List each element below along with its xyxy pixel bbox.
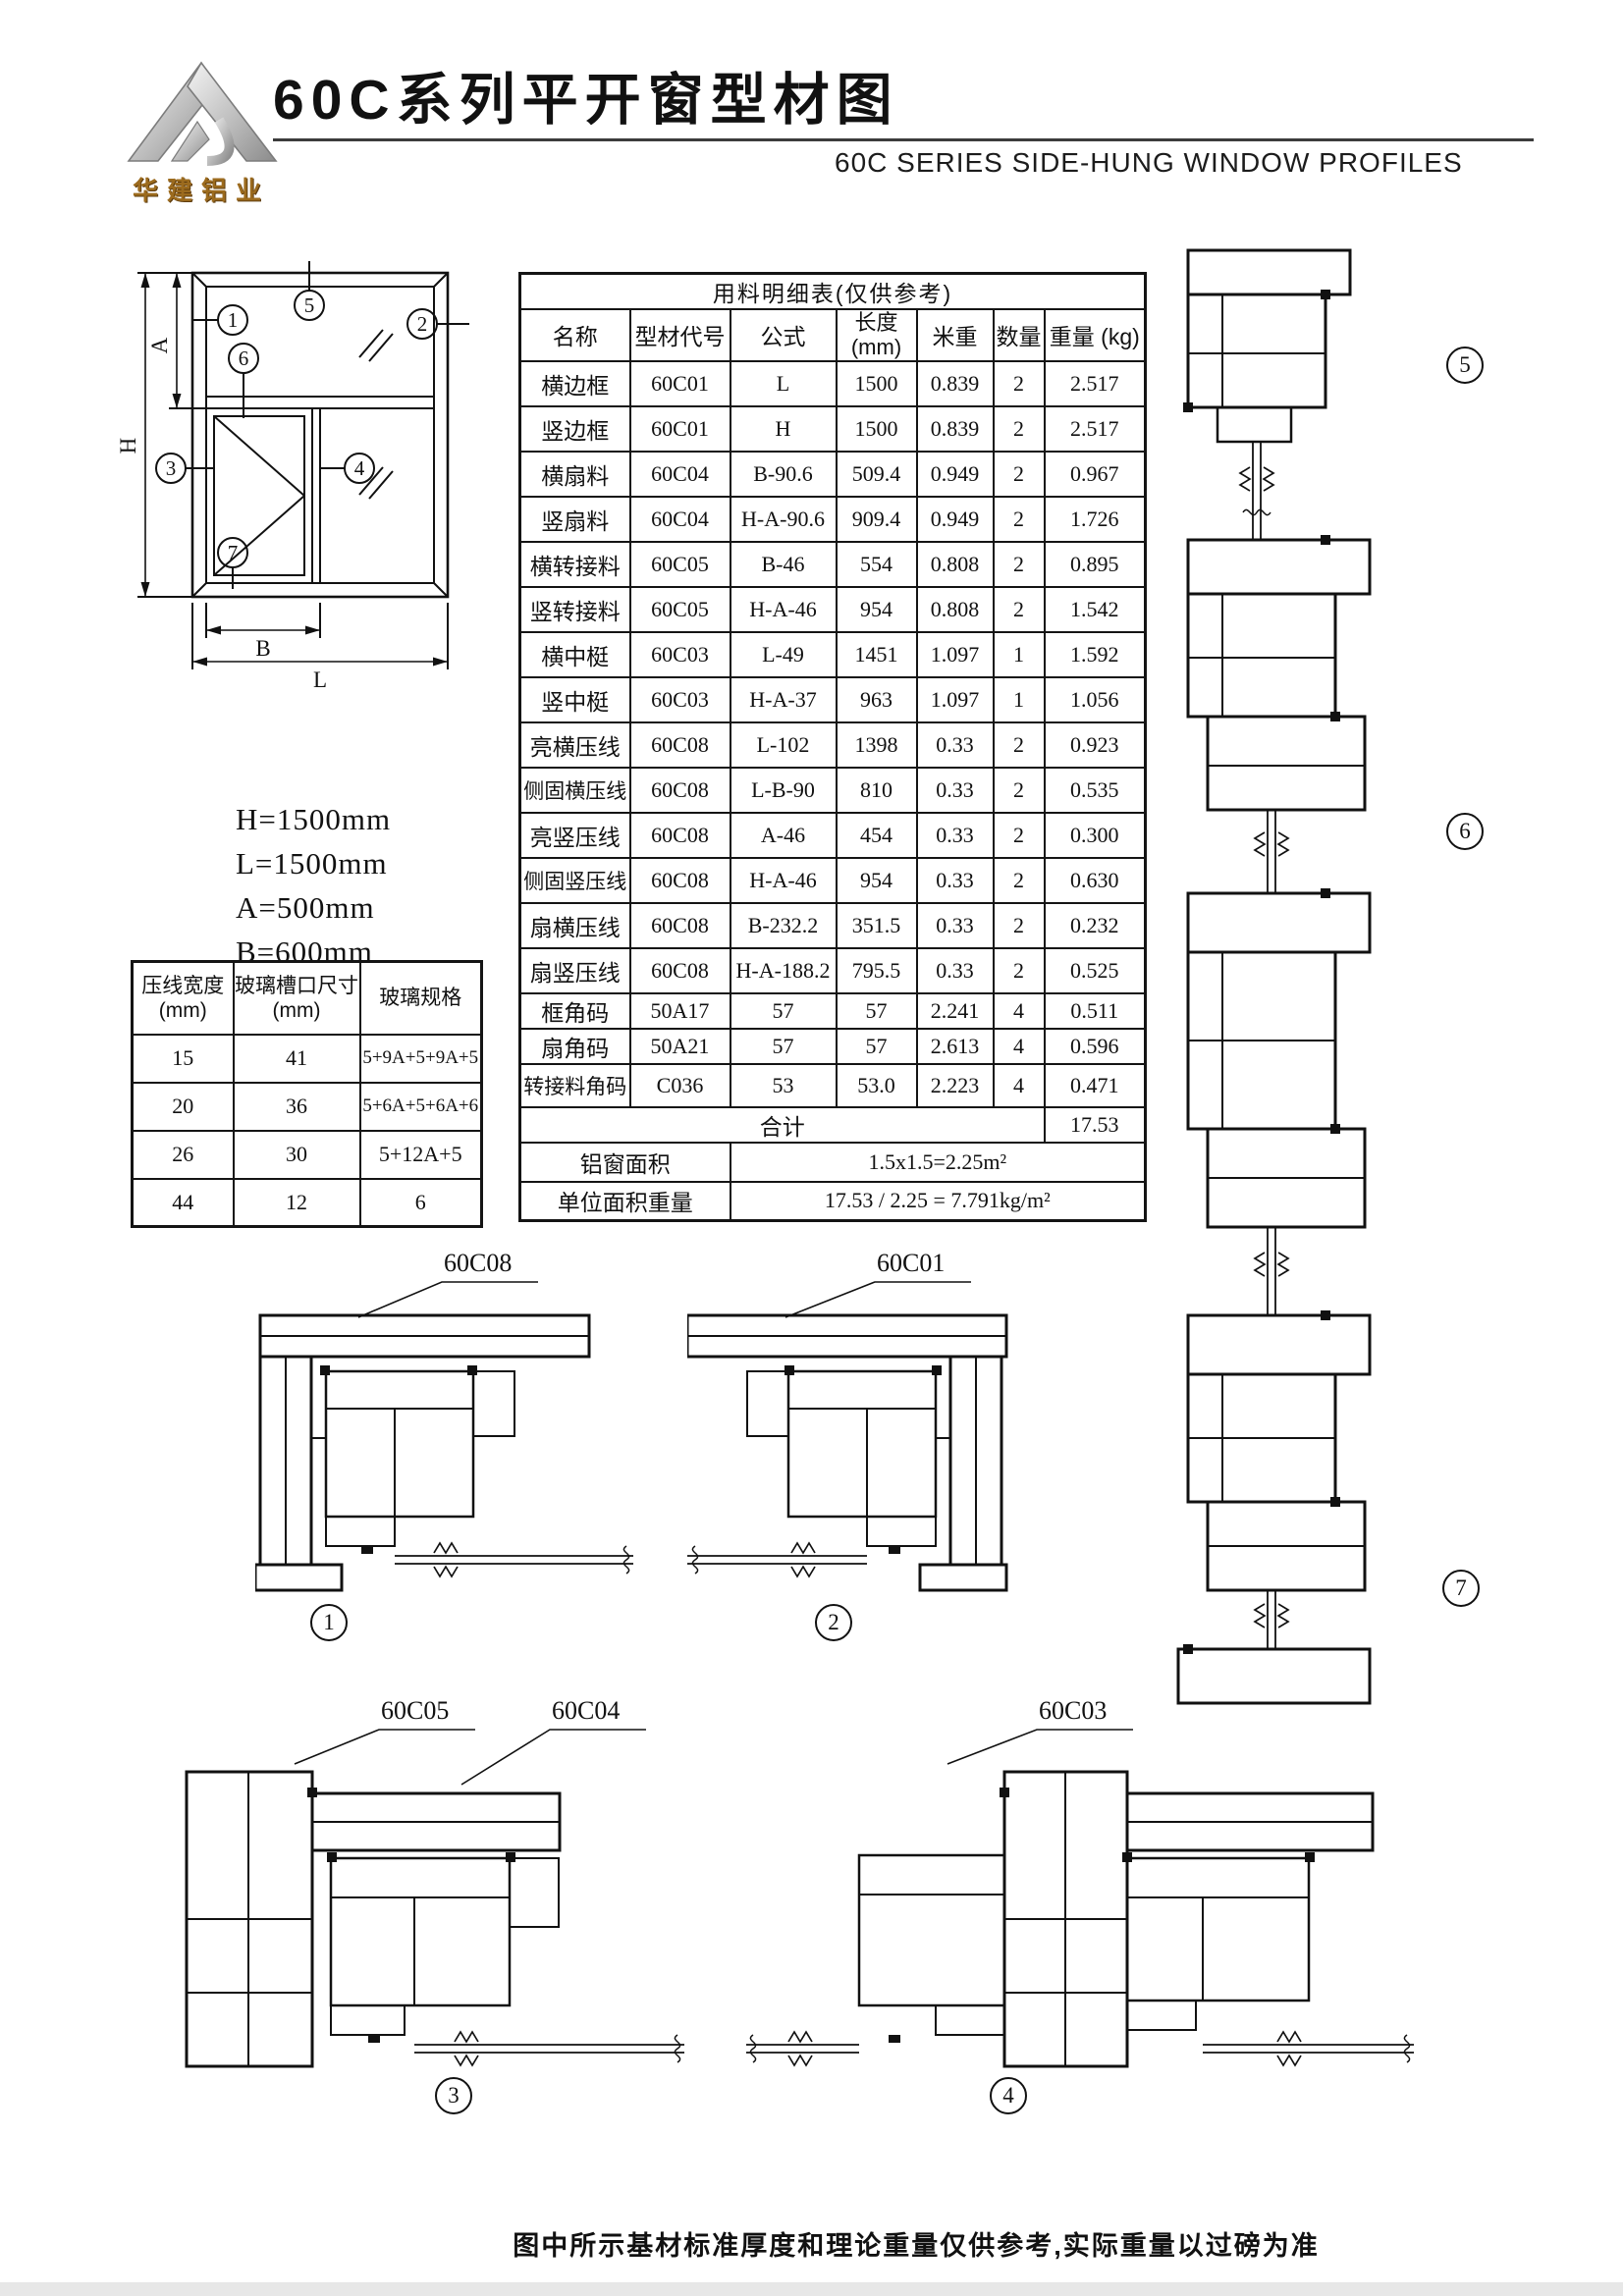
svg-text:5: 5 bbox=[304, 294, 315, 317]
svg-text:4: 4 bbox=[354, 456, 365, 480]
materials-unit-weight-row: 单位面积重量 17.53 / 2.25 = 7.791kg/m² bbox=[520, 1182, 1146, 1221]
table-cell: 60C08 bbox=[630, 722, 730, 768]
dim-label-h: H bbox=[116, 438, 140, 454]
profile-label-60C08: 60C08 bbox=[444, 1249, 512, 1278]
table-cell: 2 bbox=[994, 542, 1045, 587]
table-cell: 2 bbox=[994, 768, 1045, 813]
table-cell: 810 bbox=[837, 768, 917, 813]
table-cell: 1451 bbox=[837, 632, 917, 677]
table-cell: 351.5 bbox=[837, 903, 917, 948]
table-cell: 转接料角码 bbox=[520, 1064, 630, 1107]
dimension-note-line: A=500mm bbox=[236, 885, 391, 930]
diagram-callout-5: 5 bbox=[295, 291, 324, 320]
materials-area-row: 铝窗面积 1.5x1.5=2.25m² bbox=[520, 1143, 1146, 1182]
glass-row: 44126 bbox=[133, 1179, 482, 1227]
table-cell: 954 bbox=[837, 587, 917, 632]
total-value: 17.53 bbox=[1045, 1107, 1146, 1143]
section-2-drawing bbox=[687, 1310, 1011, 1595]
table-cell: 2 bbox=[994, 858, 1045, 903]
page-bottom-strip bbox=[0, 2282, 1623, 2296]
table-cell: 954 bbox=[837, 858, 917, 903]
table-cell: 4 bbox=[994, 993, 1045, 1029]
section-3-drawing bbox=[182, 1762, 692, 2086]
table-cell: 53.0 bbox=[837, 1064, 917, 1107]
table-cell: H-A-188.2 bbox=[730, 948, 837, 993]
section-callout-6: 6 bbox=[1446, 813, 1484, 850]
table-cell: 1.542 bbox=[1045, 587, 1146, 632]
glass-row: 26305+12A+5 bbox=[133, 1131, 482, 1179]
table-cell: H-A-46 bbox=[730, 858, 837, 903]
table-cell: 554 bbox=[837, 542, 917, 587]
table-cell: 2 bbox=[994, 948, 1045, 993]
diagram-callout-1: 1 bbox=[218, 305, 247, 335]
materials-row: 侧固横压线60C08L-B-908100.3320.535 bbox=[520, 768, 1146, 813]
table-cell: L bbox=[730, 361, 837, 406]
header-divider bbox=[273, 138, 1534, 141]
table-cell: 1.592 bbox=[1045, 632, 1146, 677]
materials-row: 横边框60C01L15000.83922.517 bbox=[520, 361, 1146, 406]
svg-text:3: 3 bbox=[166, 456, 177, 480]
table-cell: 909.4 bbox=[837, 497, 917, 542]
table-cell: 30 bbox=[234, 1131, 360, 1179]
table-cell: 1.726 bbox=[1045, 497, 1146, 542]
table-cell: 1.056 bbox=[1045, 677, 1146, 722]
table-cell: 1.097 bbox=[917, 677, 994, 722]
col-profile-code: 型材代号 bbox=[630, 309, 730, 361]
table-cell: 5+9A+5+9A+5 bbox=[360, 1035, 482, 1083]
profile-label-60C01: 60C01 bbox=[877, 1249, 945, 1278]
table-cell: 0.511 bbox=[1045, 993, 1146, 1029]
table-cell: 60C03 bbox=[630, 677, 730, 722]
table-cell: 1398 bbox=[837, 722, 917, 768]
diagram-callout-6: 6 bbox=[229, 344, 258, 373]
table-cell: 框角码 bbox=[520, 993, 630, 1029]
table-cell: 1 bbox=[994, 677, 1045, 722]
materials-table-header-row: 名称 型材代号 公式 长度 (mm) 米重 数量 重量 (kg) bbox=[520, 309, 1146, 361]
table-cell: 0.33 bbox=[917, 813, 994, 858]
table-cell: L-B-90 bbox=[730, 768, 837, 813]
table-cell: 侧固横压线 bbox=[520, 768, 630, 813]
diagram-callout-2: 2 bbox=[407, 309, 437, 339]
materials-row: 横扇料60C04B-90.6509.40.94920.967 bbox=[520, 452, 1146, 497]
table-cell: 亮竖压线 bbox=[520, 813, 630, 858]
materials-row: 框角码50A1757572.24140.511 bbox=[520, 993, 1146, 1029]
table-cell: B-232.2 bbox=[730, 903, 837, 948]
table-cell: 4 bbox=[994, 1029, 1045, 1064]
table-cell: 0.895 bbox=[1045, 542, 1146, 587]
table-cell: 2 bbox=[994, 722, 1045, 768]
table-cell: 36 bbox=[234, 1083, 360, 1131]
section-callout-2: 2 bbox=[815, 1604, 852, 1641]
table-cell: 0.808 bbox=[917, 587, 994, 632]
table-cell: 0.949 bbox=[917, 452, 994, 497]
table-cell: 0.232 bbox=[1045, 903, 1146, 948]
window-area-label: 铝窗面积 bbox=[520, 1143, 730, 1182]
table-cell: 2 bbox=[994, 406, 1045, 452]
table-cell: 2.517 bbox=[1045, 406, 1146, 452]
col-glazing-slot: 玻璃槽口尺寸 (mm) bbox=[234, 962, 360, 1035]
table-cell: 扇竖压线 bbox=[520, 948, 630, 993]
table-cell: 0.300 bbox=[1045, 813, 1146, 858]
table-cell: 横边框 bbox=[520, 361, 630, 406]
table-cell: 0.525 bbox=[1045, 948, 1146, 993]
company-name: 华建铝业 bbox=[93, 171, 309, 207]
col-formula: 公式 bbox=[730, 309, 837, 361]
table-cell: 4 bbox=[994, 1064, 1045, 1107]
table-cell: 竖边框 bbox=[520, 406, 630, 452]
diagram-callout-7: 7 bbox=[218, 538, 247, 567]
table-cell: 0.33 bbox=[917, 768, 994, 813]
table-cell: 竖转接料 bbox=[520, 587, 630, 632]
table-cell: 侧固竖压线 bbox=[520, 858, 630, 903]
materials-row: 扇角码50A2157572.61340.596 bbox=[520, 1029, 1146, 1064]
dim-label-l: L bbox=[313, 667, 327, 692]
table-cell: 2 bbox=[994, 587, 1045, 632]
glass-row: 15415+9A+5+9A+5 bbox=[133, 1035, 482, 1083]
table-cell: 横扇料 bbox=[520, 452, 630, 497]
table-cell: 60C08 bbox=[630, 813, 730, 858]
dimension-notes: H=1500mmL=1500mmA=500mmB=600mm bbox=[236, 797, 391, 974]
materials-row: 亮横压线60C08L-10213980.3320.923 bbox=[520, 722, 1146, 768]
svg-text:7: 7 bbox=[228, 541, 239, 564]
materials-row: 侧固竖压线60C08H-A-469540.3320.630 bbox=[520, 858, 1146, 903]
table-cell: B-46 bbox=[730, 542, 837, 587]
table-cell: 53 bbox=[730, 1064, 837, 1107]
table-cell: 1500 bbox=[837, 361, 917, 406]
total-label: 合计 bbox=[520, 1107, 1045, 1143]
materials-row: 扇竖压线60C08H-A-188.2795.50.3320.525 bbox=[520, 948, 1146, 993]
table-cell: 2 bbox=[994, 903, 1045, 948]
table-cell: 57 bbox=[837, 993, 917, 1029]
materials-row: 转接料角码C0365353.02.22340.471 bbox=[520, 1064, 1146, 1107]
table-cell: 60C03 bbox=[630, 632, 730, 677]
dim-label-b: B bbox=[255, 636, 270, 661]
table-cell: 12 bbox=[234, 1179, 360, 1227]
table-cell: C036 bbox=[630, 1064, 730, 1107]
table-cell: 44 bbox=[133, 1179, 234, 1227]
table-cell: 1.097 bbox=[917, 632, 994, 677]
materials-table-title: 用料明细表(仅供参考) bbox=[520, 274, 1146, 310]
table-cell: 0.33 bbox=[917, 903, 994, 948]
table-cell: 60C01 bbox=[630, 406, 730, 452]
table-cell: 0.839 bbox=[917, 361, 994, 406]
company-logo-icon bbox=[103, 57, 299, 169]
table-cell: 60C04 bbox=[630, 497, 730, 542]
footer-disclaimer: 图中所示基材标准厚度和理论重量仅供参考,实际重量以过磅为准 bbox=[474, 2224, 1358, 2263]
page-title: 60C系列平开窗型材图 bbox=[273, 55, 899, 135]
window-elevation-diagram: H A B L 1 5 2 6 bbox=[116, 259, 481, 693]
table-cell: 2 bbox=[994, 497, 1045, 542]
table-cell: 横中梃 bbox=[520, 632, 630, 677]
materials-table: 用料明细表(仅供参考) 名称 型材代号 公式 长度 (mm) 米重 数量 重量 … bbox=[518, 272, 1147, 1222]
table-cell: 2 bbox=[994, 361, 1045, 406]
page-subtitle: 60C SERIES SIDE-HUNG WINDOW PROFILES bbox=[835, 147, 1420, 179]
section-callout-5: 5 bbox=[1446, 347, 1484, 384]
materials-row: 亮竖压线60C08A-464540.3320.300 bbox=[520, 813, 1146, 858]
glass-spec-table: 压线宽度 (mm) 玻璃槽口尺寸 (mm) 玻璃规格 15415+9A+5+9A… bbox=[131, 960, 483, 1228]
materials-row: 竖转接料60C05H-A-469540.80821.542 bbox=[520, 587, 1146, 632]
table-cell: 0.596 bbox=[1045, 1029, 1146, 1064]
table-cell: 60C01 bbox=[630, 361, 730, 406]
materials-row: 竖中梃60C03H-A-379631.09711.056 bbox=[520, 677, 1146, 722]
table-cell: 0.923 bbox=[1045, 722, 1146, 768]
table-cell: 竖扇料 bbox=[520, 497, 630, 542]
unit-weight-value: 17.53 / 2.25 = 7.791kg/m² bbox=[730, 1182, 1146, 1221]
section-callout-4: 4 bbox=[990, 2077, 1027, 2114]
table-cell: 0.630 bbox=[1045, 858, 1146, 903]
col-quantity: 数量 bbox=[994, 309, 1045, 361]
table-cell: 60C08 bbox=[630, 903, 730, 948]
diagram-callout-3: 3 bbox=[156, 454, 186, 483]
table-cell: 60C08 bbox=[630, 858, 730, 903]
table-cell: 2 bbox=[994, 452, 1045, 497]
table-cell: 963 bbox=[837, 677, 917, 722]
table-cell: A-46 bbox=[730, 813, 837, 858]
table-cell: 1 bbox=[994, 632, 1045, 677]
glass-hatch-transom bbox=[359, 330, 393, 361]
table-cell: 15 bbox=[133, 1035, 234, 1083]
table-cell: H-A-90.6 bbox=[730, 497, 837, 542]
table-cell: 2.613 bbox=[917, 1029, 994, 1064]
table-cell: 41 bbox=[234, 1035, 360, 1083]
col-weight-per-meter: 米重 bbox=[917, 309, 994, 361]
dim-label-a: A bbox=[147, 337, 172, 353]
table-cell: B-90.6 bbox=[730, 452, 837, 497]
materials-row: 横中梃60C03L-4914511.09711.592 bbox=[520, 632, 1146, 677]
col-weight: 重量 (kg) bbox=[1045, 309, 1146, 361]
table-cell: 0.967 bbox=[1045, 452, 1146, 497]
table-cell: 横转接料 bbox=[520, 542, 630, 587]
table-cell: 60C05 bbox=[630, 542, 730, 587]
table-cell: 26 bbox=[133, 1131, 234, 1179]
table-cell: 竖中梃 bbox=[520, 677, 630, 722]
table-cell: 60C05 bbox=[630, 587, 730, 632]
table-cell: 1500 bbox=[837, 406, 917, 452]
table-cell: 0.808 bbox=[917, 542, 994, 587]
table-cell: 0.535 bbox=[1045, 768, 1146, 813]
table-cell: 60C08 bbox=[630, 768, 730, 813]
table-cell: 0.839 bbox=[917, 406, 994, 452]
table-cell: 2 bbox=[994, 813, 1045, 858]
dimension-note-line: H=1500mm bbox=[236, 797, 391, 841]
table-cell: 50A17 bbox=[630, 993, 730, 1029]
table-cell: 60C04 bbox=[630, 452, 730, 497]
col-length: 长度 (mm) bbox=[837, 309, 917, 361]
table-cell: H-A-46 bbox=[730, 587, 837, 632]
section-1-drawing bbox=[255, 1310, 638, 1595]
glass-row: 20365+6A+5+6A+6 bbox=[133, 1083, 482, 1131]
drawing-sheet: 华建铝业 60C系列平开窗型材图 60C SERIES SIDE-HUNG WI… bbox=[0, 0, 1623, 2296]
dimension-note-line: L=1500mm bbox=[236, 841, 391, 885]
section-callout-3: 3 bbox=[435, 2077, 472, 2114]
table-cell: 0.471 bbox=[1045, 1064, 1146, 1107]
table-cell: H bbox=[730, 406, 837, 452]
col-bead-width: 压线宽度 (mm) bbox=[133, 962, 234, 1035]
table-cell: 扇角码 bbox=[520, 1029, 630, 1064]
profile-label-60C04: 60C04 bbox=[552, 1696, 620, 1726]
table-cell: 0.33 bbox=[917, 858, 994, 903]
section-callout-7: 7 bbox=[1442, 1570, 1480, 1607]
section-4-drawing bbox=[741, 1762, 1419, 2086]
svg-text:1: 1 bbox=[228, 308, 239, 332]
table-cell: L-49 bbox=[730, 632, 837, 677]
materials-row: 扇横压线60C08B-232.2351.50.3320.232 bbox=[520, 903, 1146, 948]
table-cell: 5+6A+5+6A+6 bbox=[360, 1083, 482, 1131]
table-cell: 0.949 bbox=[917, 497, 994, 542]
table-cell: 20 bbox=[133, 1083, 234, 1131]
glass-table-header-row: 压线宽度 (mm) 玻璃槽口尺寸 (mm) 玻璃规格 bbox=[133, 962, 482, 1035]
table-cell: 60C08 bbox=[630, 948, 730, 993]
materials-total-row: 合计 17.53 bbox=[520, 1107, 1146, 1143]
table-cell: 57 bbox=[730, 1029, 837, 1064]
col-name: 名称 bbox=[520, 309, 630, 361]
table-cell: 50A21 bbox=[630, 1029, 730, 1064]
window-area-value: 1.5x1.5=2.25m² bbox=[730, 1143, 1146, 1182]
table-cell: 5+12A+5 bbox=[360, 1131, 482, 1179]
svg-text:2: 2 bbox=[417, 312, 428, 336]
materials-table-title-row: 用料明细表(仅供参考) bbox=[520, 274, 1146, 310]
materials-row: 竖扇料60C04H-A-90.6909.40.94921.726 bbox=[520, 497, 1146, 542]
materials-row: 竖边框60C01H15000.83922.517 bbox=[520, 406, 1146, 452]
vertical-section-stack-drawing bbox=[1173, 245, 1458, 1708]
table-cell: H-A-37 bbox=[730, 677, 837, 722]
table-cell: 0.33 bbox=[917, 948, 994, 993]
profile-label-60C03: 60C03 bbox=[1039, 1696, 1107, 1726]
table-cell: 6 bbox=[360, 1179, 482, 1227]
svg-text:6: 6 bbox=[239, 347, 249, 370]
table-cell: 57 bbox=[730, 993, 837, 1029]
unit-weight-label: 单位面积重量 bbox=[520, 1182, 730, 1221]
table-cell: 2.517 bbox=[1045, 361, 1146, 406]
table-cell: 2.223 bbox=[917, 1064, 994, 1107]
section-callout-1: 1 bbox=[310, 1604, 348, 1641]
table-cell: 454 bbox=[837, 813, 917, 858]
table-cell: L-102 bbox=[730, 722, 837, 768]
table-cell: 扇横压线 bbox=[520, 903, 630, 948]
diagram-callout-4: 4 bbox=[345, 454, 374, 483]
table-cell: 57 bbox=[837, 1029, 917, 1064]
table-cell: 0.33 bbox=[917, 722, 994, 768]
table-cell: 509.4 bbox=[837, 452, 917, 497]
materials-row: 横转接料60C05B-465540.80820.895 bbox=[520, 542, 1146, 587]
table-cell: 795.5 bbox=[837, 948, 917, 993]
table-cell: 亮横压线 bbox=[520, 722, 630, 768]
profile-label-60C05: 60C05 bbox=[381, 1696, 449, 1726]
table-cell: 2.241 bbox=[917, 993, 994, 1029]
col-glass-spec: 玻璃规格 bbox=[360, 962, 482, 1035]
